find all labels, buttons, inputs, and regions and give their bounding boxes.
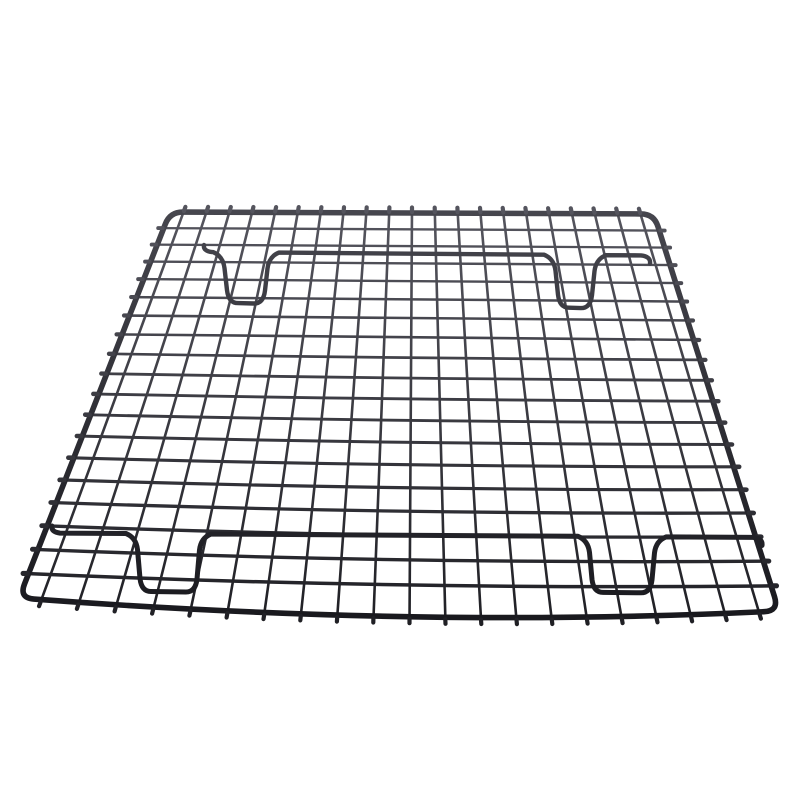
wire-nub-bottom — [227, 613, 228, 618]
wire-nub-top — [525, 208, 526, 213]
wire-nub-top — [275, 207, 276, 211]
wire-nub-bottom — [115, 607, 116, 611]
vertical-wire — [594, 208, 693, 621]
wire-nub-top — [298, 207, 299, 211]
horizontal-wire — [85, 415, 725, 423]
wire-nub-bottom — [725, 616, 726, 620]
horizontal-wire — [131, 297, 687, 302]
wire-nub-top — [616, 209, 617, 213]
vertical-wire — [115, 207, 231, 611]
wire-nub-bottom — [760, 614, 761, 618]
vertical-wire — [639, 209, 761, 619]
horizontal-wire — [109, 354, 705, 360]
wire-nub-bottom — [39, 602, 41, 606]
wire-nub-bottom — [77, 605, 78, 609]
horizontal-wire — [101, 374, 712, 381]
wire-nub-top — [321, 207, 322, 211]
vertical-wire — [39, 207, 185, 606]
wire-nub-bottom — [300, 616, 301, 620]
horizontal-wire — [93, 394, 718, 401]
horizontal-wire — [152, 245, 670, 248]
horizontal-wire — [23, 573, 776, 586]
horizontal-wire — [33, 549, 769, 561]
vertical-wire — [77, 207, 208, 609]
horizontal-wire — [117, 334, 700, 340]
wire-nub-bottom — [622, 619, 623, 624]
wire-nub-top — [184, 207, 186, 211]
wire-nub-bottom — [691, 617, 692, 621]
wire-nub-top — [594, 208, 595, 212]
wire-nub-top — [230, 207, 231, 211]
wire-nub-bottom — [657, 618, 658, 622]
horizontal-wire — [51, 503, 754, 514]
horizontal-wire — [124, 316, 693, 321]
wire-nub-bottom — [264, 615, 265, 620]
wire-nub-top — [571, 208, 572, 212]
wire-nub-bottom — [552, 620, 553, 625]
wire-nub-top — [639, 209, 640, 213]
horizontal-wire — [77, 436, 732, 445]
wire-nub-top — [252, 207, 253, 211]
product-photo-canvas — [0, 0, 800, 800]
cooling-rack-svg — [0, 0, 800, 800]
wire-nub-bottom — [189, 611, 190, 615]
wire-nub-bottom — [152, 609, 153, 613]
wire-nub-top — [548, 208, 549, 212]
wire-nub-bottom — [587, 619, 588, 623]
horizontal-wire — [138, 279, 681, 283]
horizontal-wire — [68, 458, 739, 467]
wire-nub-top — [503, 208, 504, 213]
wire-nub-top — [207, 207, 208, 211]
horizontal-wire — [158, 228, 665, 231]
horizontal-wire — [60, 480, 747, 490]
